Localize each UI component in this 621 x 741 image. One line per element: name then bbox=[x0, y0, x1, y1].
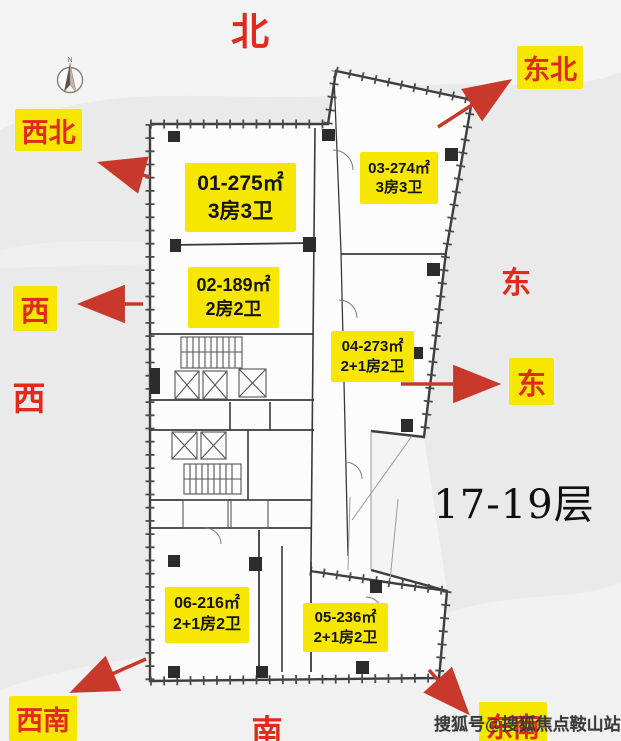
unit-label-02: 02-189㎡ 2房2卫 bbox=[188, 267, 279, 328]
direction-label-north: 北 bbox=[225, 6, 275, 50]
direction-label-northeast: 东北 bbox=[517, 46, 583, 89]
direction-label-east: 东 bbox=[498, 261, 534, 299]
unit-area: 01-275㎡ bbox=[197, 170, 283, 197]
unit-area: 05-236㎡ bbox=[315, 608, 377, 628]
direction-label-west-boxed: 西 bbox=[13, 286, 57, 331]
unit-label-05: 05-236㎡ 2+1房2卫 bbox=[303, 603, 388, 652]
unit-rooms: 3房3卫 bbox=[208, 198, 273, 225]
direction-text: 南 bbox=[252, 706, 283, 741]
direction-label-northwest: 西北 bbox=[15, 109, 82, 151]
floor-range-text: 17-19层 bbox=[433, 472, 594, 530]
direction-text: 西 bbox=[13, 372, 46, 420]
unit-rooms: 2房2卫 bbox=[205, 298, 261, 321]
unit-area: 04-273㎡ bbox=[342, 337, 404, 357]
direction-text: 北 bbox=[231, 1, 269, 56]
unit-rooms: 2+1房2卫 bbox=[341, 357, 405, 377]
direction-label-east-boxed: 东 bbox=[509, 358, 554, 405]
unit-rooms: 2+1房2卫 bbox=[173, 615, 241, 636]
watermark: 搜狐号@搜狐焦点鞍山站 bbox=[434, 710, 621, 735]
unit-label-01: 01-275㎡ 3房3卫 bbox=[185, 163, 296, 232]
unit-area: 02-189㎡ bbox=[196, 274, 270, 297]
unit-label-03: 03-274㎡ 3房3卫 bbox=[360, 152, 438, 204]
direction-text: 东 bbox=[517, 361, 546, 403]
direction-text: 东北 bbox=[523, 48, 577, 87]
unit-rooms: 2+1房2卫 bbox=[314, 628, 378, 648]
direction-text: 西南 bbox=[16, 699, 70, 738]
direction-text: 西 bbox=[20, 288, 49, 330]
direction-label-west: 西 bbox=[11, 376, 47, 416]
direction-text: 西北 bbox=[22, 111, 76, 150]
unit-area: 03-274㎡ bbox=[368, 159, 430, 179]
floorplan-page: N 北 东北 西北 西 西 东 东 西南 南 东南 01-275㎡ 3房3卫 0… bbox=[0, 0, 621, 741]
floor-range-label: 17-19层 bbox=[428, 477, 600, 525]
unit-label-06: 06-216㎡ 2+1房2卫 bbox=[165, 587, 249, 643]
direction-label-south: 南 bbox=[248, 711, 286, 741]
direction-text: 东 bbox=[501, 258, 531, 302]
watermark-text: 搜狐号@搜狐焦点鞍山站 bbox=[434, 715, 621, 734]
unit-rooms: 3房3卫 bbox=[376, 178, 423, 198]
direction-label-southwest: 西南 bbox=[9, 696, 77, 741]
unit-label-04: 04-273㎡ 2+1房2卫 bbox=[331, 331, 414, 382]
northwest-arrow bbox=[104, 164, 150, 177]
compass-north-letter: N bbox=[67, 57, 72, 64]
unit-area: 06-216㎡ bbox=[174, 594, 240, 615]
